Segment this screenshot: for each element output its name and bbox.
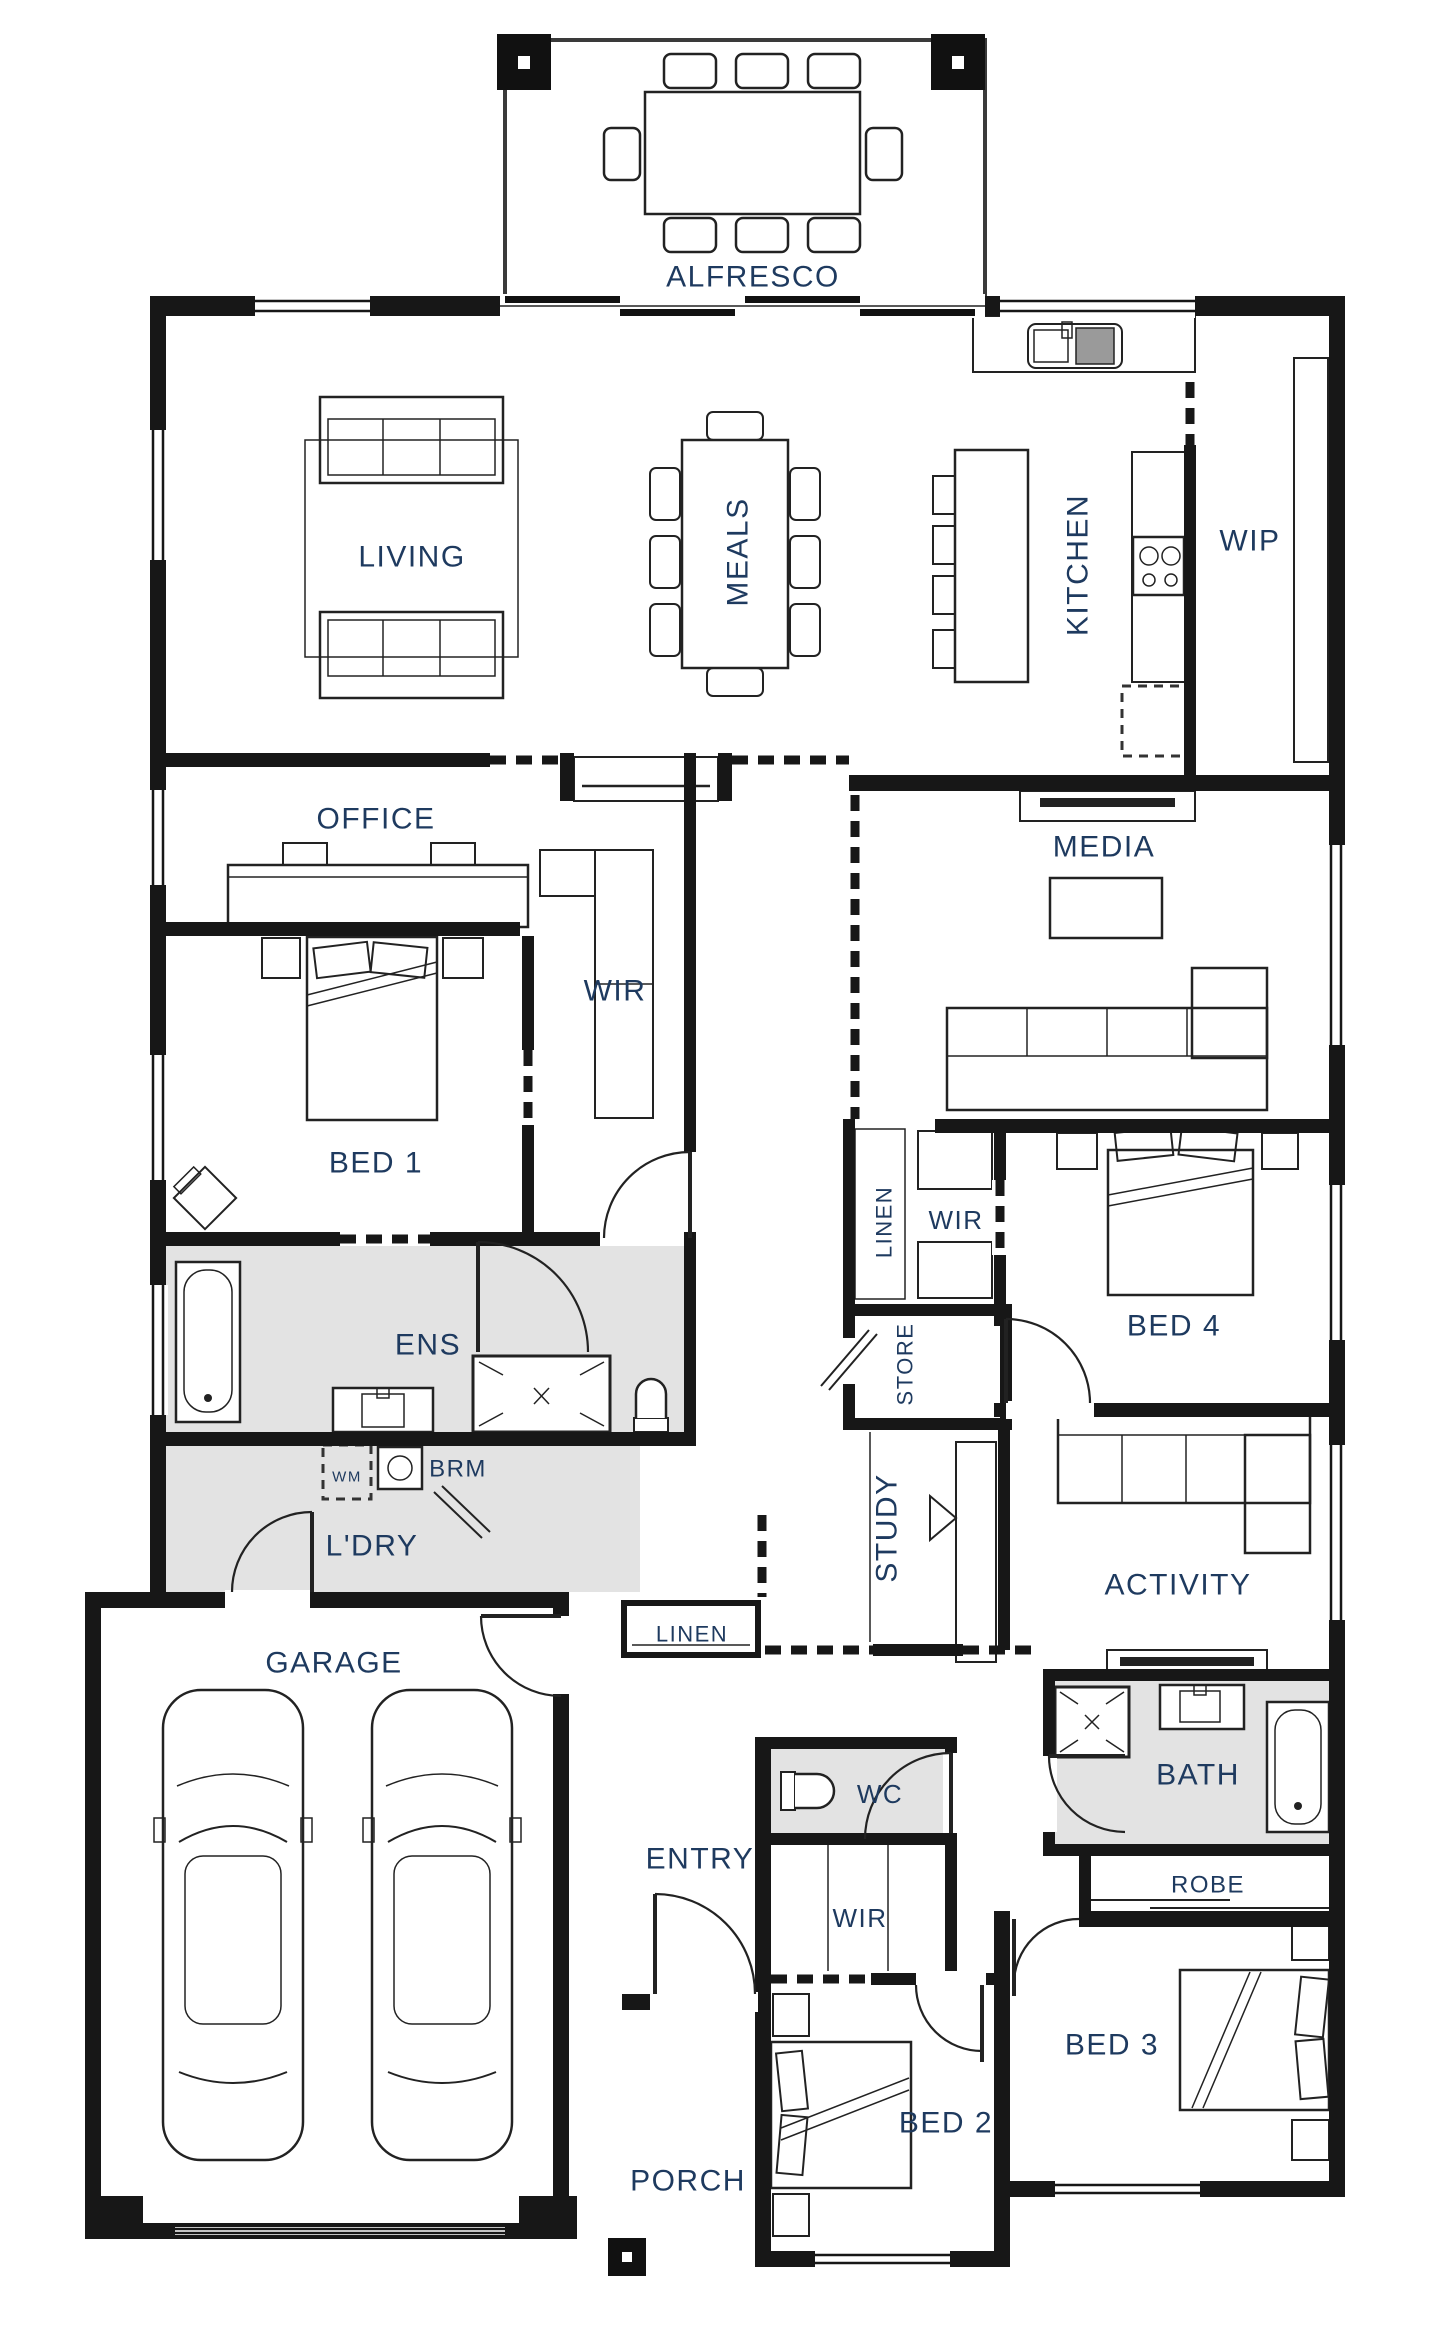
room-label-wm: WM — [332, 1468, 362, 1485]
front-door — [655, 1894, 755, 1994]
alfresco-dining-table — [604, 54, 902, 252]
room-label-linen-entry: LINEN — [656, 1622, 728, 1647]
media-coffee-table — [1050, 878, 1162, 938]
store-door — [821, 1330, 877, 1390]
room-label-living: LIVING — [358, 541, 465, 574]
room-label-bed1: BED 1 — [329, 1147, 423, 1180]
room-labels: ALFRESCOLIVINGMEALSKITCHENWIPOFFICEMEDIA… — [265, 261, 1280, 2198]
pantry-shelf — [1294, 358, 1328, 762]
alfresco-structure — [497, 34, 985, 298]
living-sofa-south — [320, 612, 503, 698]
bed2-door — [916, 1985, 982, 2062]
activity-sofa — [1058, 1413, 1310, 1553]
ens-toilet — [634, 1379, 668, 1432]
room-label-ldry: L'DRY — [326, 1530, 419, 1563]
activity-furniture — [1058, 1413, 1310, 1676]
bed3-furniture — [1180, 1920, 1329, 2160]
porch-post — [608, 2238, 646, 2276]
room-label-brm: BRM — [429, 1455, 487, 1482]
room-label-study: STUDY — [871, 1473, 904, 1582]
ens-shower — [473, 1356, 610, 1432]
laundry-trough — [378, 1447, 422, 1489]
bed3-door — [1014, 1919, 1079, 1996]
garage-car-left — [154, 1690, 312, 2160]
room-label-bed2: BED 2 — [899, 2107, 993, 2140]
media-sofa — [947, 968, 1267, 1110]
room-label-bed3: BED 3 — [1065, 2029, 1159, 2062]
room-label-porch: PORCH — [630, 2165, 746, 2198]
bed1-furniture — [168, 937, 483, 1229]
room-label-ens: ENS — [395, 1329, 461, 1362]
bed1-door — [604, 1152, 690, 1238]
room-label-activity: ACTIVITY — [1104, 1569, 1251, 1602]
room-label-bed4: BED 4 — [1127, 1310, 1221, 1343]
robe-sliding-doors — [1091, 1900, 1333, 1908]
room-label-alfresco: ALFRESCO — [666, 261, 840, 294]
room-label-robe: ROBE — [1171, 1871, 1245, 1898]
bed1-side-table-right — [443, 938, 483, 978]
room-label-kitchen: KITCHEN — [1062, 494, 1095, 636]
garage-car-right — [363, 1690, 521, 2160]
room-label-media: MEDIA — [1053, 831, 1156, 864]
room-label-linen-hall: LINEN — [872, 1186, 897, 1258]
fridge-space — [1122, 686, 1188, 756]
room-label-meals: MEALS — [722, 497, 755, 606]
wc-toilet — [781, 1772, 834, 1810]
room-label-wir-bed1: WIR — [584, 975, 647, 1008]
room-label-wir-bed2: WIR — [832, 1903, 887, 1933]
room-label-wir-bed4: WIR — [928, 1205, 983, 1235]
room-label-entry: ENTRY — [646, 1843, 755, 1876]
bed4-furniture — [1057, 1127, 1298, 1295]
bath-shower — [1055, 1687, 1129, 1757]
room-label-office: OFFICE — [317, 803, 436, 836]
room-label-store: STORE — [893, 1323, 918, 1406]
garage-internal-door — [481, 1616, 561, 1696]
office-desk — [228, 843, 528, 927]
floor-plan-page: ALFRESCOLIVINGMEALSKITCHENWIPOFFICEMEDIA… — [0, 0, 1440, 2340]
hall-niche-cupboard — [574, 757, 718, 801]
bed1-side-table-left — [262, 938, 300, 978]
room-label-wc: WC — [857, 1779, 903, 1809]
floor-plan-svg: ALFRESCOLIVINGMEALSKITCHENWIPOFFICEMEDIA… — [0, 0, 1440, 2340]
room-label-wip: WIP — [1219, 525, 1280, 558]
room-label-bath: BATH — [1156, 1759, 1240, 1792]
study-chair — [930, 1496, 956, 1540]
room-label-garage: GARAGE — [265, 1647, 402, 1680]
bed4-door — [1006, 1319, 1090, 1403]
bed1-chair — [168, 1161, 236, 1229]
kitchen-bench-cooktop — [1132, 452, 1185, 682]
kitchen-sink-counter — [973, 316, 1195, 372]
kitchen-island — [933, 450, 1028, 682]
bed2-furniture — [771, 1994, 911, 2236]
